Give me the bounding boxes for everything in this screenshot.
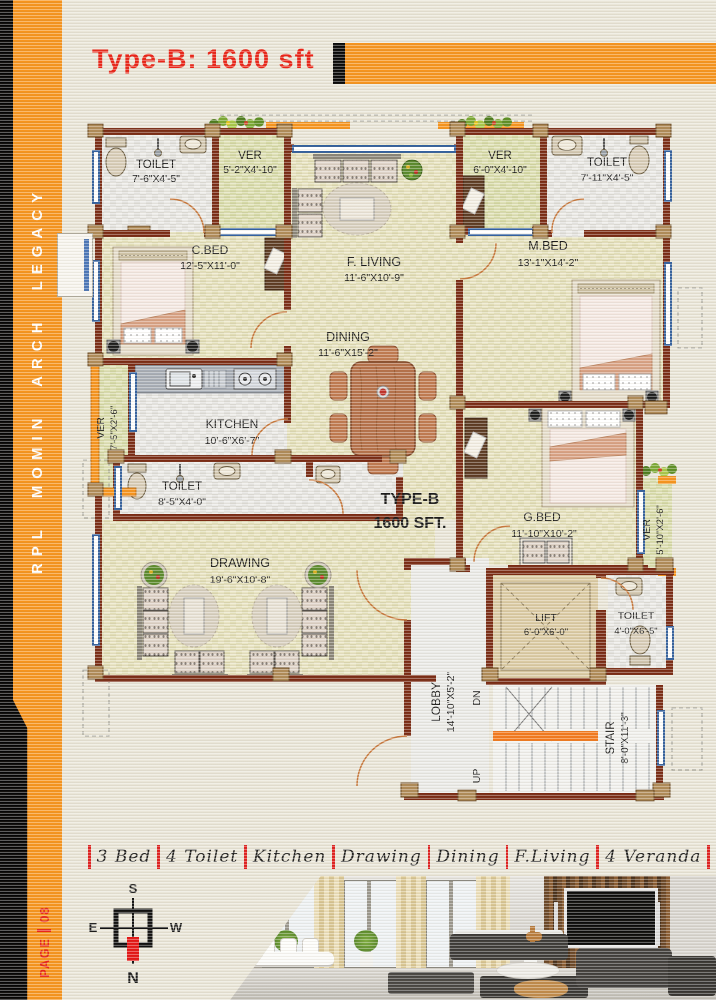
photo-sofa [668,956,716,996]
room-dims: 5'-2"X4'-10" [223,165,277,176]
photo-dining-table [228,952,334,967]
floor-plan: TOILET 7'-6"X4'-5" VER 5'-2"X4'-10" C.BE… [80,110,716,835]
room-dims: 7'-5"X2'-6" [109,406,120,450]
legend-item-veranda: 4 Veranda [599,847,707,867]
room-dims: 10'-6"X6'-7" [205,435,260,447]
room-label: TOILET [136,159,176,171]
room-dims: 8'-0"X11'-3" [620,712,631,764]
photo-plant-pot [360,952,373,967]
room-label: DRAWING [210,556,270,570]
room-label: TOILET [618,610,655,622]
type-label-line2: 1600 SFT. [374,515,447,532]
photo-coffee-table [496,962,560,979]
legend-item-dining: Dining [430,847,505,867]
photo-curtain [396,876,426,968]
compass-s: S [129,881,138,896]
plant [402,160,422,180]
legend-separator [707,845,710,869]
room-dims: 8'-5"X4'-0" [158,497,206,508]
room-label: G.BED [523,510,561,524]
photo-column [246,876,262,968]
room-label: LIFT [535,612,557,624]
page-number-divider [37,929,51,932]
room-dims: 11'-10"X10'-2" [511,528,577,540]
room-label: KITCHEN [206,417,259,431]
room-label: STAIR [605,721,617,754]
legend-item-kitchen: Kitchen [247,847,332,867]
interior-photo [228,876,716,1000]
page-title: Type-B: 1600 sft [92,44,315,75]
bay-window [57,233,93,297]
stair-dn-label: DN [471,690,483,705]
room-label: VER [641,519,653,541]
master-bed [559,280,660,403]
room-dims: 5'-10"X2'-6" [655,505,666,554]
room-dims: 11'-6"X10'-9" [344,272,404,284]
photo-deer-figurine [526,932,542,941]
room-label: LOBBY [429,682,443,722]
room-dims: 12'-5"X11'-0" [180,260,240,272]
photo-chair [236,938,253,953]
photo-chair [258,938,275,953]
room-label: VER [95,417,107,439]
photo-sofa [450,934,568,960]
bay-window-glass [84,239,89,291]
stair-up-label: UP [471,769,483,784]
room-dims: 11'-6"X15'-2" [318,347,378,359]
photo-sofa [576,948,672,988]
photo-chair [302,938,319,953]
compass-w: W [170,920,183,935]
kitchen-counter [135,365,285,393]
compass-icon: S E W N [86,880,186,992]
left-black-strip-lower [0,700,29,1000]
page-root: RPL MOMIN ARCH LEGACY PAGE 08 Type-B: 16… [0,0,716,1000]
room-label: M.BED [528,239,568,253]
compass-north-pointer [127,937,139,961]
room-dims: 19'-6"X10'-8" [210,574,271,586]
room-label: F. LIVING [347,255,401,269]
room-dims: 13'-1"X14'-2" [518,257,579,269]
page-number: PAGE 08 [32,882,56,1000]
room-label: TOILET [587,157,627,169]
room-dims: 4'-0"X6'-5" [614,626,657,636]
type-label-line1: TYPE-B [381,491,440,508]
room-dims: 14'-10"X5'-2" [445,671,457,732]
photo-chair [280,938,297,953]
legend-item-fliving: F.Living [508,847,596,867]
photo-plant [354,930,378,952]
header-bar-notch [333,43,345,84]
page-label: PAGE [37,938,52,978]
room-label: VER [488,150,512,162]
header-accent-bar [345,43,716,84]
legend-item-bed: 3 Bed [91,847,158,867]
photo-speaker [656,902,660,946]
photo-tv [564,888,658,948]
room-label: DINING [326,330,370,344]
room-label: TOILET [162,481,202,493]
room-dims: 6'-0"X6'-0" [524,627,568,638]
room-dims: 6'-0"X4'-10" [473,165,527,176]
room-dims: 7'-6"X4'-5" [132,174,180,185]
brand-text: RPL MOMIN ARCH LEGACY [26,30,50,730]
stair-landing-bar [493,731,598,741]
room-label: VER [238,150,262,162]
photo-ottoman [388,972,474,994]
compass-n: N [127,970,139,987]
legend: 3 Bed 4 Toilet Kitchen Drawing Dining F.… [88,840,710,874]
room-dims: 7'-11"X4'-5" [581,173,634,184]
legend-item-drawing: Drawing [335,847,428,867]
legend-item-toilet: 4 Toilet [160,847,244,867]
room-label: C.BED [192,243,229,257]
photo-elephant-figurine [514,980,568,998]
kitchen-sink [170,372,190,386]
compass-e: E [89,920,98,935]
page-number-value: 08 [37,906,52,922]
